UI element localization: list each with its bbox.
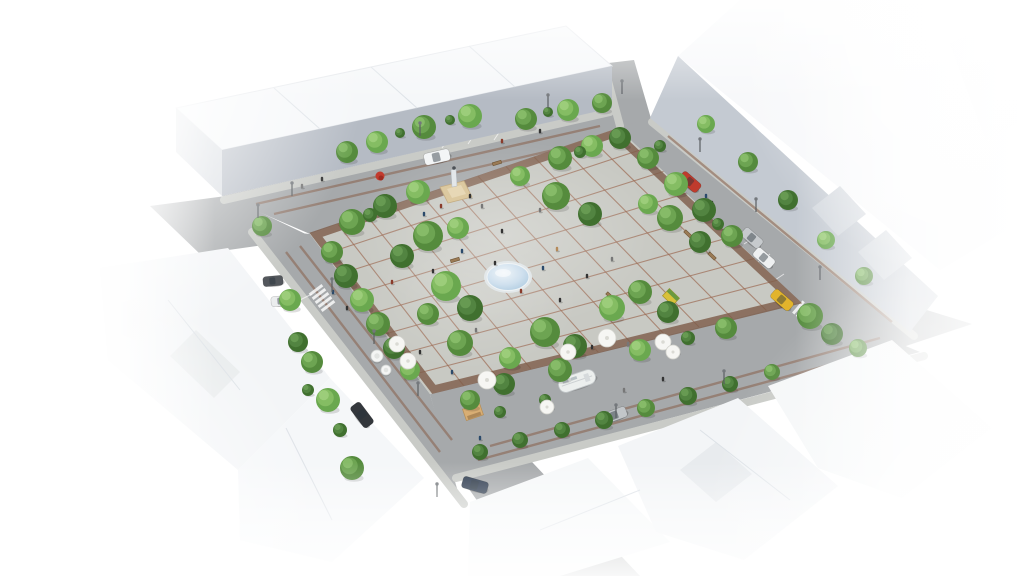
white-vignette <box>0 0 1024 576</box>
plaza-svg <box>0 0 1024 576</box>
vignette-layer <box>0 0 1024 576</box>
screenshot-root <box>0 0 1024 576</box>
